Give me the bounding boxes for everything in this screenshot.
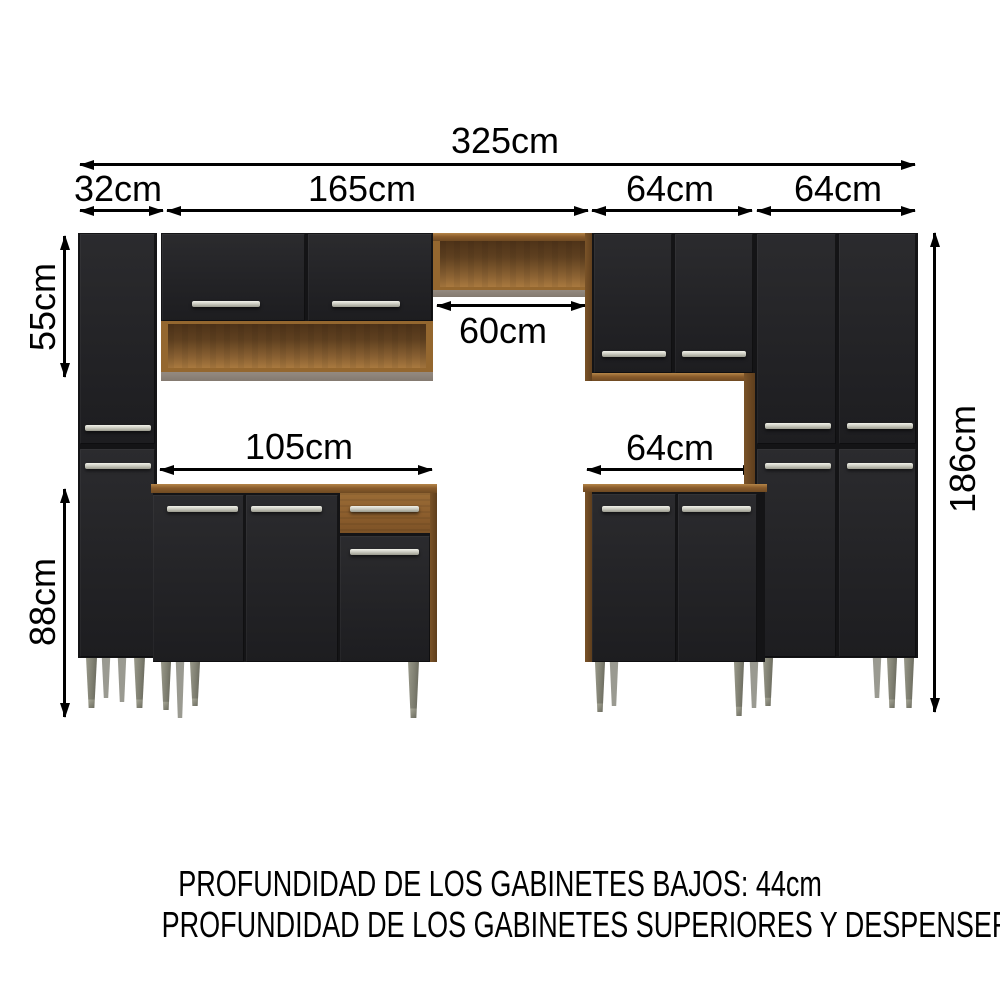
dimension-line-base-left-width — [160, 468, 432, 471]
left-tall-cabinet-upper-handle — [85, 425, 151, 431]
pantry-cabinet — [755, 233, 918, 658]
pantry-left-side-panel — [744, 373, 755, 490]
pantry-lower-right-door — [839, 449, 916, 657]
niche-shelf-top — [433, 233, 593, 241]
hutch-upper-section — [161, 233, 593, 381]
dimension-label-base-right-width: 64cm — [626, 430, 714, 466]
dimension-line-upper-section-height — [63, 236, 66, 377]
left-tall-cabinet-lower-door — [80, 449, 155, 657]
cabinet-leg — [175, 662, 185, 718]
hutch-open-shelf — [168, 324, 426, 368]
dimension-line-total-width — [80, 163, 915, 166]
base-left-door-2 — [246, 495, 338, 662]
cabinet-leg — [407, 662, 420, 718]
dimension-line-left-cabinet-width — [80, 209, 163, 212]
dimension-label-upper-section-height: 55cm — [25, 263, 61, 351]
base-left-side-panel — [430, 493, 437, 662]
depth-note-superiores: PROFUNDIDAD DE LOS GABINETES SUPERIORES … — [0, 905, 1000, 945]
dimension-label-pantry-width: 64cm — [794, 171, 882, 207]
dimension-label-total-height: 186cm — [945, 405, 981, 513]
pantry-lower-left-door — [757, 449, 836, 657]
base-left-handle-3 — [350, 549, 419, 555]
dimension-label-total-width: 325cm — [451, 123, 559, 159]
base-left-drawer-handle — [350, 506, 419, 512]
cabinet-leg — [133, 658, 146, 708]
niche-shelf-frame — [433, 241, 593, 290]
cabinet-leg — [117, 658, 127, 702]
dimension-label-left-cabinet-width: 32cm — [74, 171, 162, 207]
dimension-label-hutch-width: 165cm — [308, 171, 416, 207]
upper-right-bottom-strip — [592, 373, 755, 381]
hutch-open-shelf-frame — [161, 321, 433, 372]
dimension-line-total-height — [933, 233, 936, 712]
base-right-handle-1 — [602, 506, 670, 512]
base-right-door-1 — [592, 494, 676, 662]
base-right-cabinet — [585, 492, 765, 662]
cabinet-leg — [903, 658, 915, 708]
upper-right-cabinet — [592, 233, 755, 381]
cabinet-leg — [160, 662, 172, 710]
pantry-lower-left-handle — [765, 463, 831, 469]
left-tall-cabinet — [78, 233, 157, 658]
cabinet-leg — [749, 662, 759, 708]
cabinet-leg — [733, 662, 745, 716]
base-left-handle-1 — [167, 506, 238, 512]
dimension-label-base-section-height: 88cm — [25, 558, 61, 646]
cabinet-leg — [609, 662, 619, 706]
base-right-handle-2 — [682, 506, 751, 512]
upper-right-left-handle — [602, 351, 666, 357]
base-left-handle-2 — [251, 506, 322, 512]
left-tall-cabinet-upper-door — [80, 234, 155, 444]
pantry-lower-right-handle — [847, 463, 913, 469]
cabinet-leg — [762, 658, 774, 706]
hutch-right-door — [308, 234, 432, 321]
hutch-left-door — [162, 234, 305, 321]
hutch-right-door-handle — [332, 301, 400, 307]
pantry-upper-left-door — [757, 234, 836, 444]
base-left-drawer — [340, 493, 430, 533]
cabinet-leg — [872, 658, 882, 698]
base-left-door-1 — [153, 495, 244, 662]
upper-right-right-handle — [682, 351, 746, 357]
hutch-bottom-strip — [161, 372, 433, 381]
dimension-line-base-right-width — [587, 468, 757, 471]
hutch-left-door-handle — [192, 301, 260, 307]
dimension-line-base-section-height — [63, 489, 66, 717]
cabinet-leg — [594, 662, 606, 712]
hutch-door-section — [161, 233, 433, 322]
depth-note-bajos-text: PROFUNDIDAD DE LOS GABINETES BAJOS: 44cm — [178, 864, 822, 904]
cabinet-leg — [886, 658, 898, 708]
dimension-line-pantry-width — [757, 209, 915, 212]
pantry-upper-right-handle — [847, 423, 913, 429]
base-left-countertop — [151, 484, 437, 493]
pantry-upper-left-handle — [765, 423, 831, 429]
dimension-line-hutch-width — [167, 209, 588, 212]
base-right-door-2 — [678, 494, 757, 662]
base-right-countertop — [583, 484, 767, 492]
cabinet-leg — [85, 658, 98, 708]
left-tall-cabinet-lower-handle — [85, 463, 151, 469]
base-right-side-panel — [585, 492, 592, 662]
depth-note-bajos: PROFUNDIDAD DE LOS GABINETES BAJOS: 44cm — [0, 864, 1000, 904]
pantry-upper-right-door — [839, 234, 916, 444]
dimension-label-base-left-width: 105cm — [245, 429, 353, 465]
kitchen-cabinet-dimension-diagram: 325cm 32cm 165cm 64cm 64cm 55cm 88cm 186… — [0, 0, 1000, 1000]
cabinet-leg — [189, 662, 201, 706]
depth-note-superiores-text: PROFUNDIDAD DE LOS GABINETES SUPERIORES … — [162, 905, 1000, 945]
niche-open-shelf — [440, 241, 586, 287]
niche-shelf-bottom-strip — [433, 290, 593, 297]
cabinet-leg — [101, 658, 111, 698]
dimension-label-upper-right-width: 64cm — [626, 171, 714, 207]
base-left-cabinet — [153, 493, 437, 662]
dimension-line-upper-right-width — [592, 209, 752, 212]
